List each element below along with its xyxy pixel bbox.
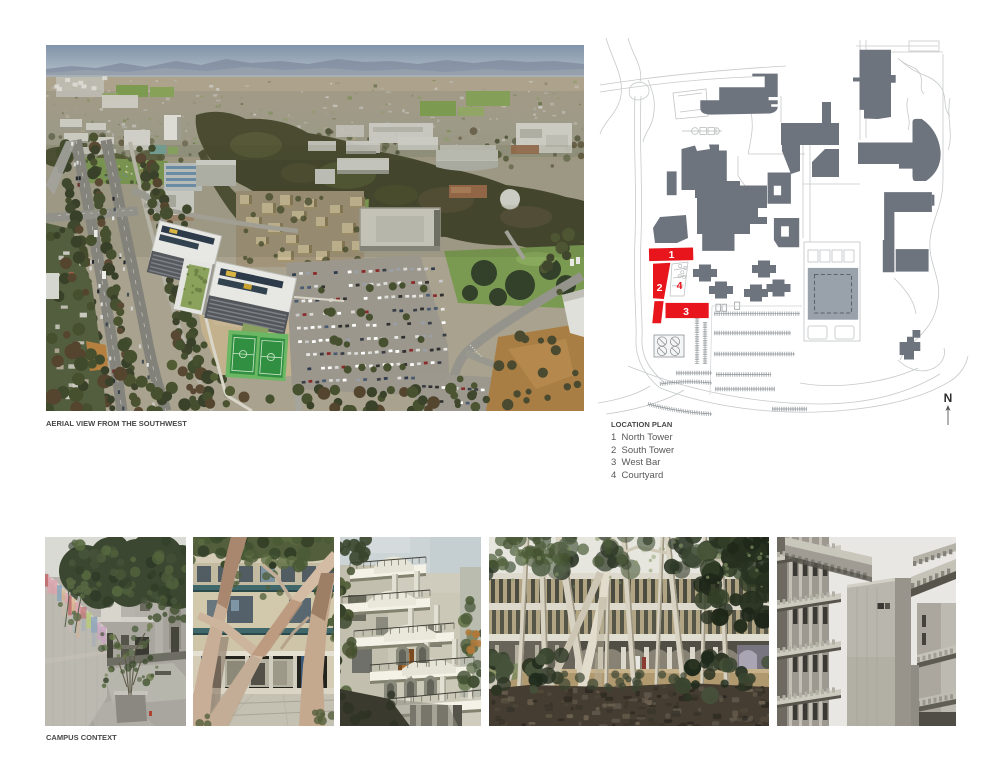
svg-text:3: 3 (683, 306, 689, 318)
svg-text:1: 1 (669, 249, 675, 261)
svg-text:N: N (944, 391, 953, 405)
svg-text:4: 4 (677, 280, 683, 292)
svg-text:2: 2 (657, 282, 663, 294)
